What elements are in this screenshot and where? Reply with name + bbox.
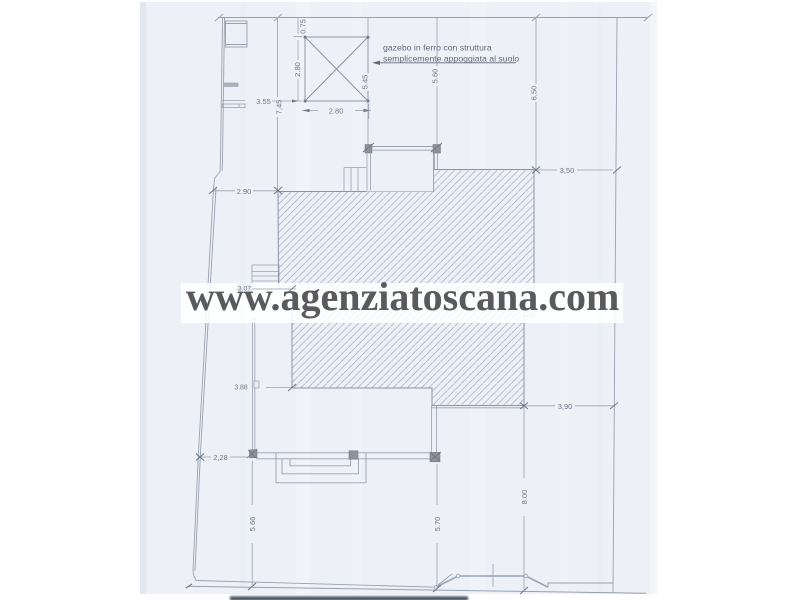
svg-text:5.45: 5.45 xyxy=(361,75,370,90)
svg-text:www.agenziatoscana.com: www.agenziatoscana.com xyxy=(186,274,619,319)
svg-text:2.90: 2.90 xyxy=(237,187,252,196)
svg-text:8.00: 8.00 xyxy=(520,490,529,505)
svg-text:5.60: 5.60 xyxy=(431,69,440,84)
svg-text:3,50: 3,50 xyxy=(560,166,575,175)
svg-text:2,28: 2,28 xyxy=(213,453,228,462)
svg-text:3.88: 3.88 xyxy=(234,385,248,392)
svg-text:7,45: 7,45 xyxy=(275,100,284,115)
svg-text:2.80: 2.80 xyxy=(329,107,344,116)
svg-text:6,50: 6,50 xyxy=(530,86,539,101)
svg-text:3.07: 3.07 xyxy=(238,285,251,292)
svg-text:3,90: 3,90 xyxy=(558,402,573,411)
svg-text:2.80: 2.80 xyxy=(293,62,302,77)
svg-text:semplicemente appoggiata al su: semplicemente appoggiata al suolo xyxy=(383,54,519,64)
svg-text:gazebo in ferro con struttura: gazebo in ferro con struttura xyxy=(383,43,492,53)
svg-text:3.55: 3.55 xyxy=(256,97,271,106)
svg-text:5.66: 5.66 xyxy=(248,517,257,532)
svg-text:0.75: 0.75 xyxy=(299,19,308,34)
svg-text:5.70: 5.70 xyxy=(433,517,442,532)
